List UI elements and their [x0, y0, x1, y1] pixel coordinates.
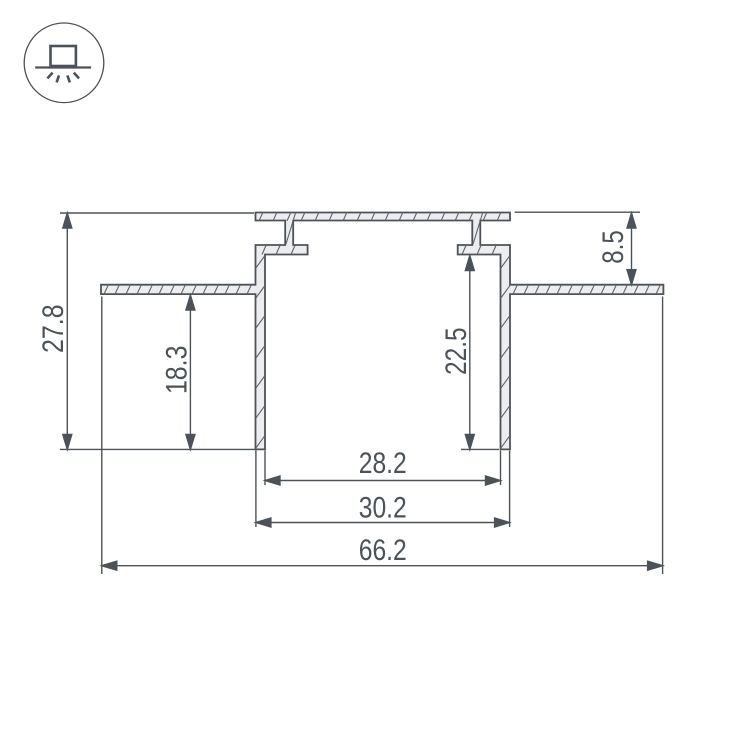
svg-text:28.2: 28.2: [359, 447, 407, 480]
svg-text:27.8: 27.8: [37, 304, 70, 353]
svg-text:22.5: 22.5: [440, 327, 473, 375]
svg-text:18.3: 18.3: [161, 346, 194, 395]
svg-text:8.5: 8.5: [597, 230, 630, 264]
svg-text:30.2: 30.2: [359, 491, 407, 524]
svg-text:66.2: 66.2: [359, 534, 407, 567]
